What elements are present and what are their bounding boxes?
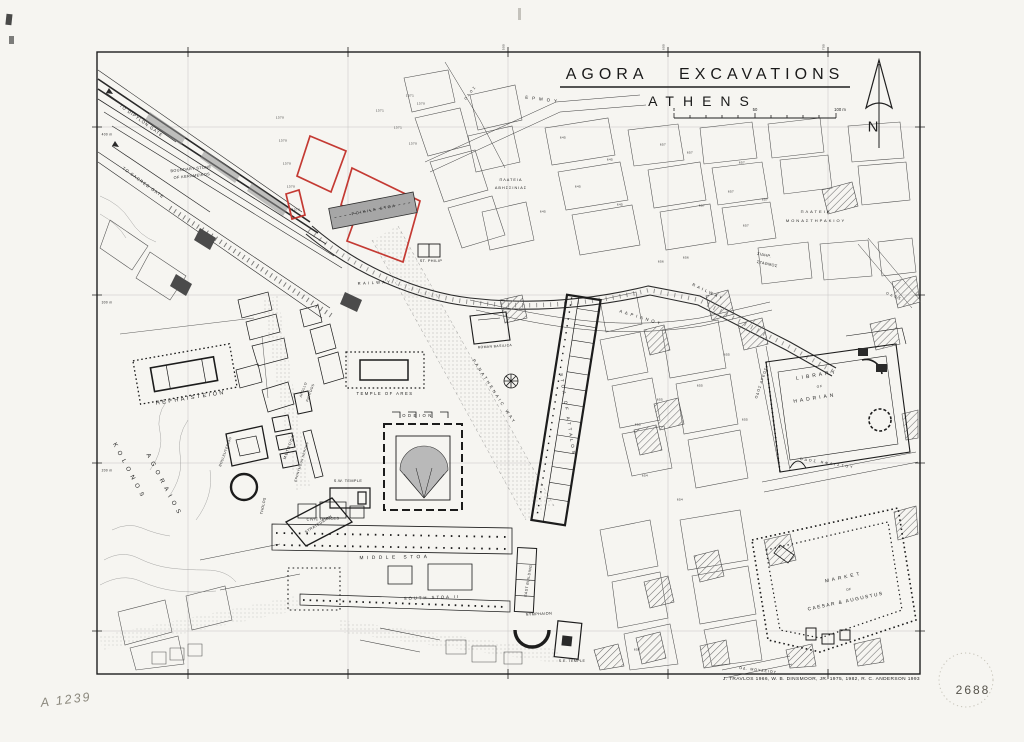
- parcel-number-657-15: 657: [660, 144, 666, 147]
- label-to-sacred-gate: TO SACRED GATE: [121, 166, 164, 199]
- label-odeion: ODEION: [402, 414, 434, 418]
- label-stoa-of-attalos: STOA OF ATTALOS: [558, 373, 576, 457]
- text-overlay: AGORA EXCAVATIONS ATHENS 0 50 100 m N J.…: [0, 0, 1024, 742]
- parcel-number-658-31: 658: [634, 649, 640, 652]
- grid-tick-600: 600: [663, 44, 666, 50]
- label-adrianou-street: ΑΔΡΙΑΝΟΥ: [619, 309, 664, 326]
- parcel-number-655-26: 655: [697, 385, 703, 388]
- label-temple-of-ares: TEMPLE OF ARES: [356, 392, 413, 396]
- parcel-number-1370-2: 1370: [276, 117, 284, 120]
- label-civic-offices: CIVIC OFFICES: [307, 518, 340, 523]
- parcel-number-1370-9: 1370: [409, 143, 417, 146]
- grid-tick-500: 500: [503, 44, 506, 50]
- label-middle-stoa: MIDDLE STOA: [359, 556, 430, 562]
- label-kolonos: KOLONOS: [111, 442, 147, 502]
- label-st-philip: ST. PHILIP: [420, 260, 443, 264]
- parcel-number-1370-1: 1370: [417, 103, 425, 106]
- label-railway-east: RAILWAY: [691, 283, 724, 301]
- parcel-number-1370-4: 1370: [283, 163, 291, 166]
- grid-tick-700: 700: [823, 44, 826, 50]
- label-boundary-stone-line2: OF KERAMEIKOS: [174, 173, 211, 181]
- label-library-of-hadrian-line3: HADRIAN: [793, 393, 837, 405]
- grid-tick-400m: 400 m: [102, 133, 113, 136]
- label-railway-west: RAILWAY: [358, 280, 393, 286]
- label-railway-station-line2: ΣΤΑΘΜΟΣ: [756, 261, 777, 269]
- label-odos-street-ne: ΟΔΟΣ: [885, 292, 903, 302]
- parcel-number-1370-3: 1370: [279, 140, 287, 143]
- grid-tick-300m: 300 m: [102, 301, 113, 304]
- label-plateia-monastirakiou-line2: ΜΟΝΑΣΤΗΡΑΚΙΟΥ: [786, 219, 846, 223]
- parcel-number-645-14: 645: [617, 204, 623, 207]
- label-se-temple: S.E. TEMPLE: [559, 660, 586, 664]
- parcel-number-655-24: 655: [635, 424, 641, 427]
- parcel-number-657-16: 657: [687, 152, 693, 155]
- label-bouleuterion: BOULEUTERION: [219, 437, 233, 468]
- label-od-mouseiou: ΟΔ. ΜΟΥΣΕΙΟΥ: [739, 667, 777, 675]
- label-library-of-hadrian-line1: LIBRARY: [796, 370, 839, 382]
- label-poikile-stoa: POIKILE STOA: [351, 204, 396, 217]
- parcel-number-1370-5: 1370: [287, 186, 295, 189]
- parcel-number-657-21: 657: [743, 225, 749, 228]
- label-to-dipylon-gate: TO DIPYLON GATE: [119, 104, 164, 138]
- label-panathenaic-way: PANATHENAIC WAY: [471, 359, 516, 426]
- label-odos-street-north: ΟΔΟΣ: [464, 85, 477, 101]
- parcel-number-645-12: 645: [575, 186, 581, 189]
- label-south-stoa-ii: SOUTH STOA II: [404, 595, 461, 601]
- parcel-number-655-28: 655: [742, 419, 748, 422]
- grid-tick-200m: 200 m: [102, 469, 113, 472]
- parcel-number-645-11: 645: [607, 159, 613, 162]
- label-plateia-avissinias-line2: ΑΒΗΣΣΙΝΙΑΣ: [495, 187, 527, 191]
- parcel-number-1371-0: 1371: [406, 95, 414, 98]
- label-plateia-avissinias-line1: ΠΛΑΤΕΙΑ: [500, 179, 523, 183]
- label-market-caesar-line3: CAESAR & AUGUSTUS: [808, 593, 885, 614]
- label-market-caesar-line1: MARKET: [825, 573, 863, 586]
- label-tholos: THOLOS: [260, 497, 267, 515]
- parcel-number-654-30: 654: [677, 499, 683, 502]
- parcel-number-655-25: 655: [724, 354, 730, 357]
- parcel-number-1370-6: 1370: [292, 209, 300, 212]
- label-roman-basilica: ROMAN BASILICA: [478, 344, 513, 350]
- parcel-number-654-29: 654: [642, 475, 648, 478]
- label-apollo-patroos-line2: PATROOS: [306, 384, 316, 403]
- parcel-number-657-18: 657: [728, 191, 734, 194]
- parcel-number-645-10: 645: [560, 137, 566, 140]
- label-odos-areos: ΟΔΟΣ ΑΡΕΩΣ: [755, 367, 769, 399]
- map-labels-layer: TO DIPYLON GATETO SACRED GATEBOUNDARY ST…: [0, 0, 1024, 742]
- label-railway-station-line1: ΣΙΔΗΡ.: [757, 253, 772, 260]
- label-agoraios: AGORAIOS: [144, 453, 183, 519]
- label-plateia-monastirakiou-line1: ΠΛΑΤΕΙΑ: [801, 210, 832, 214]
- parcel-number-656-22: 656: [658, 261, 664, 264]
- parcel-number-657-17: 657: [739, 162, 745, 165]
- parcel-number-1371-7: 1371: [376, 110, 384, 113]
- label-sw-temple: S.W. TEMPLE: [334, 480, 363, 484]
- parcel-number-657-20: 657: [762, 199, 768, 202]
- label-library-of-hadrian-line2: OF: [817, 385, 824, 389]
- label-nymphaion: NYMPHAION: [526, 612, 553, 617]
- label-metroon: METROON: [284, 434, 297, 460]
- parcel-number-1371-8: 1371: [394, 127, 402, 130]
- label-east-building: EAST BUILDING: [524, 565, 533, 598]
- parcel-number-656-23: 656: [683, 257, 689, 260]
- label-market-caesar-line2: OF: [846, 588, 852, 592]
- scanned-map-page: AGORA EXCAVATIONS ATHENS 0 50 100 m N J.…: [0, 0, 1024, 742]
- parcel-number-655-27: 655: [657, 399, 663, 402]
- parcel-number-645-13: 645: [540, 211, 546, 214]
- label-hephaisteion: HEPHAISTEION: [156, 391, 227, 408]
- label-ermou-street: ΕΡΜΟΥ: [525, 96, 561, 105]
- parcel-number-657-19: 657: [699, 205, 705, 208]
- label-eponymous-heroes: EPONYMOUS HEROES: [294, 442, 309, 483]
- label-odos-ifestou: ΟΔΟΣ ΗΦΑΙΣΤΟΥ: [799, 458, 854, 470]
